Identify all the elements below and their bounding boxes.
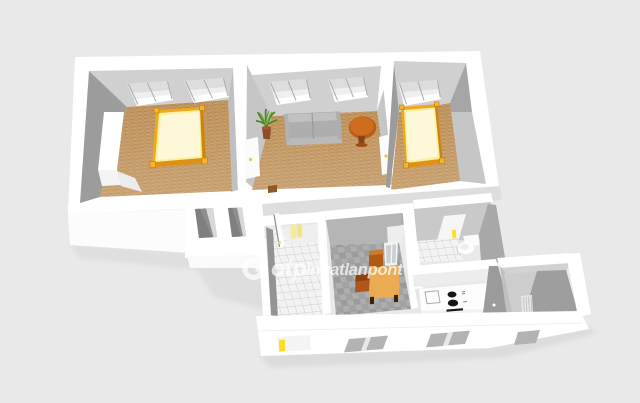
svg-text:otp: otp xyxy=(271,255,307,281)
svg-text:ingatlanpont: ingatlanpont xyxy=(306,261,404,279)
